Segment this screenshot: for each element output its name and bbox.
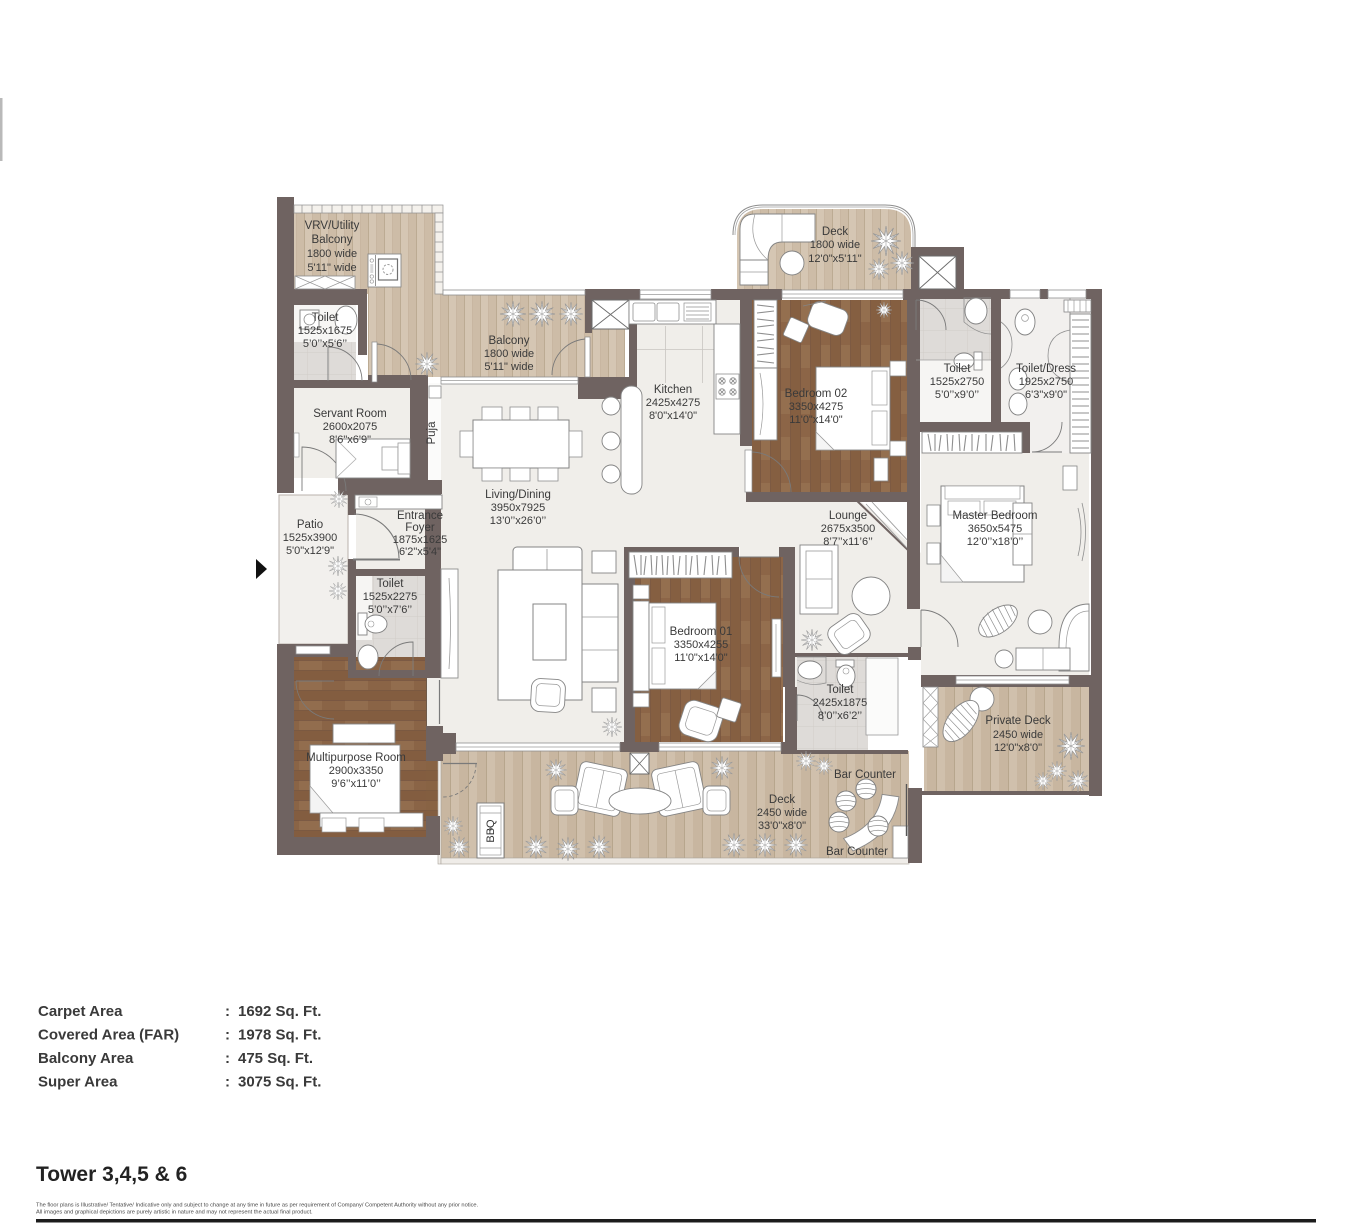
svg-text:2425x1875: 2425x1875 [813,697,867,709]
svg-text:12'0"x8'0": 12'0"x8'0" [994,742,1042,754]
svg-text:Master Bedroom: Master Bedroom [952,510,1037,522]
svg-text:Covered Area (FAR): Covered Area (FAR) [38,1027,179,1044]
svg-text:Toilet: Toilet [944,363,972,375]
svg-text:11'0"x14'0": 11'0"x14'0" [674,652,727,664]
svg-text:3075 Sq. Ft.: 3075 Sq. Ft. [238,1074,321,1091]
svg-text::: : [225,1050,230,1067]
svg-text:12’0’’x18’0’’: 12’0’’x18’0’’ [967,536,1023,548]
svg-text:5’0’’x9’0’’: 5’0’’x9’0’’ [935,389,979,401]
svg-text:Lounge: Lounge [829,510,867,522]
svg-text:12'0"x5'11": 12'0"x5'11" [808,253,861,265]
svg-text:1875x1625: 1875x1625 [393,534,447,546]
svg-text:Toilet/Dress: Toilet/Dress [1016,363,1076,375]
svg-text:Bedroom 02: Bedroom 02 [785,388,848,400]
svg-text:Super Area: Super Area [38,1074,118,1091]
svg-text:9’6’’x11’0’’: 9’6’’x11’0’’ [331,778,381,790]
svg-text:Patio: Patio [297,519,323,531]
svg-text:Kitchen: Kitchen [654,384,692,396]
svg-text:2425x4275: 2425x4275 [646,397,700,409]
svg-text:Deck: Deck [822,226,848,238]
svg-text:5'11" wide: 5'11" wide [307,262,356,274]
svg-text:All images and graphical depic: All images and graphical depictions are … [36,1210,313,1216]
svg-text:BBQ: BBQ [485,819,497,843]
svg-text:Bar Counter: Bar Counter [826,846,888,858]
svg-text:6'2"x5'4": 6'2"x5'4" [399,546,441,558]
svg-text:Balcony Area: Balcony Area [38,1050,134,1067]
svg-text:1525x2275: 1525x2275 [363,591,417,603]
svg-text:Toilet: Toilet [377,578,405,590]
svg-text:2600x2075: 2600x2075 [323,421,377,433]
svg-text:Servant Room: Servant Room [313,408,387,420]
svg-text:8’0’’x6’2’’: 8’0’’x6’2’’ [818,710,862,722]
svg-text:Balcony: Balcony [312,234,353,246]
svg-text:2450 wide: 2450 wide [757,807,807,819]
svg-text:Toilet: Toilet [312,312,340,324]
svg-text:Entrance: Entrance [397,510,443,522]
svg-text:3350x4255: 3350x4255 [674,639,728,651]
svg-text:8'0"x14'0": 8'0"x14'0" [649,410,697,422]
svg-text:1800 wide: 1800 wide [307,248,357,260]
svg-text:3350x4275: 3350x4275 [789,401,843,413]
svg-text::: : [225,1074,230,1091]
svg-text:5'11" wide: 5'11" wide [484,361,533,373]
svg-text:475 Sq. Ft.: 475 Sq. Ft. [238,1050,313,1067]
svg-text:3950x7925: 3950x7925 [491,502,545,514]
svg-text:5'0"x12'9": 5'0"x12'9" [286,545,334,557]
svg-text:1525x2750: 1525x2750 [930,376,984,388]
svg-text:Living/Dining: Living/Dining [485,489,551,501]
svg-text:Bar Counter: Bar Counter [834,769,896,781]
svg-text:Multipurpose Room: Multipurpose Room [306,752,406,764]
svg-text:Toilet: Toilet [827,684,855,696]
svg-text:1800 wide: 1800 wide [484,348,534,360]
svg-text:33'0"x8'0": 33'0"x8'0" [758,820,806,832]
svg-text:1692 Sq. Ft.: 1692 Sq. Ft. [238,1003,321,1020]
svg-text:1978 Sq. Ft.: 1978 Sq. Ft. [238,1027,321,1044]
svg-text:11'0"x14'0": 11'0"x14'0" [789,414,842,426]
svg-text:2675x3500: 2675x3500 [821,523,875,535]
svg-text:6'3"x9'0": 6'3"x9'0" [1025,389,1067,401]
svg-text:Deck: Deck [769,794,795,806]
svg-text:VRV/Utility: VRV/Utility [305,220,360,232]
svg-text:1525x3900: 1525x3900 [283,532,337,544]
svg-text:3650x5475: 3650x5475 [968,523,1022,535]
svg-text:1925x2750: 1925x2750 [1019,376,1073,388]
svg-text:1800 wide: 1800 wide [810,239,860,251]
svg-text:Balcony: Balcony [489,335,530,347]
svg-text:Bedroom 01: Bedroom 01 [670,626,733,638]
svg-text:2900x3350: 2900x3350 [329,765,383,777]
svg-text:Foyer: Foyer [405,522,435,534]
svg-text:Puja: Puja [426,421,438,445]
svg-text:Carpet Area: Carpet Area [38,1003,123,1020]
svg-text::: : [225,1027,230,1044]
svg-text:2450 wide: 2450 wide [993,729,1043,741]
svg-text:The floor plans is Illustrativ: The floor plans is Illustrative/ Tentati… [36,1203,479,1209]
svg-text:Private Deck: Private Deck [985,715,1050,727]
svg-text:8'6"x6'9": 8'6"x6'9" [329,434,371,446]
svg-text:13’0’’x26’0’’: 13’0’’x26’0’’ [490,515,546,527]
svg-text:1525x1675: 1525x1675 [298,325,352,337]
svg-text:5’0’’x7’6’’: 5’0’’x7’6’’ [368,604,412,616]
svg-text:8’7’’x11’6’’: 8’7’’x11’6’’ [823,536,873,548]
svg-text::: : [225,1003,230,1020]
svg-text:5’0’’x5‘6’’: 5’0’’x5‘6’’ [303,338,347,350]
svg-text:Tower 3,4,5 & 6: Tower 3,4,5 & 6 [36,1163,187,1186]
